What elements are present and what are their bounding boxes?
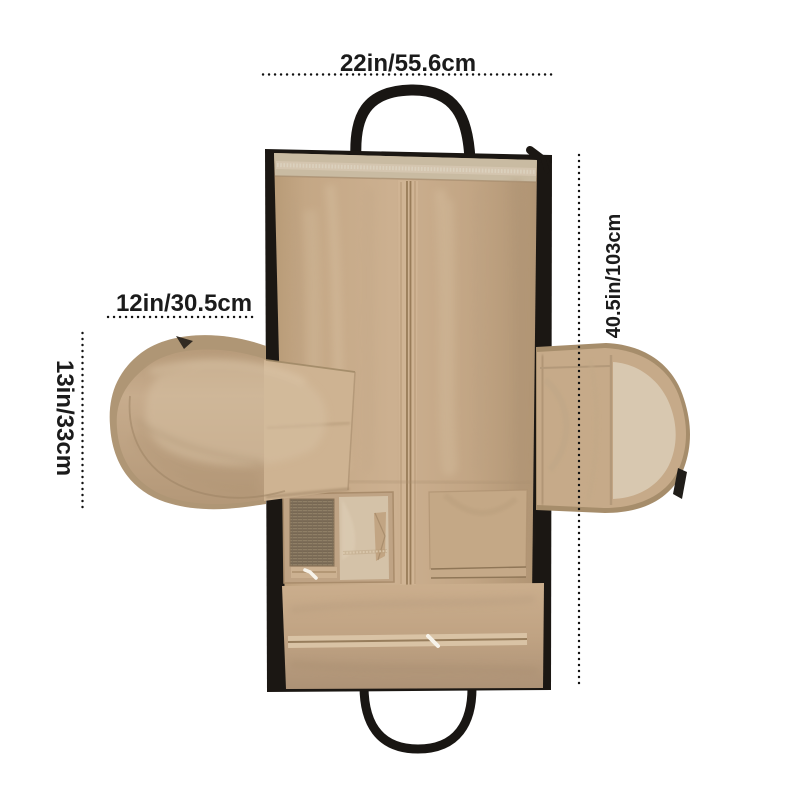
svg-text:40.5in/103cm: 40.5in/103cm xyxy=(603,214,625,339)
svg-text:13in/33cm: 13in/33cm xyxy=(51,360,78,476)
svg-text:12in/30.5cm: 12in/30.5cm xyxy=(116,290,252,317)
svg-text:22in/55.6cm: 22in/55.6cm xyxy=(340,50,476,77)
